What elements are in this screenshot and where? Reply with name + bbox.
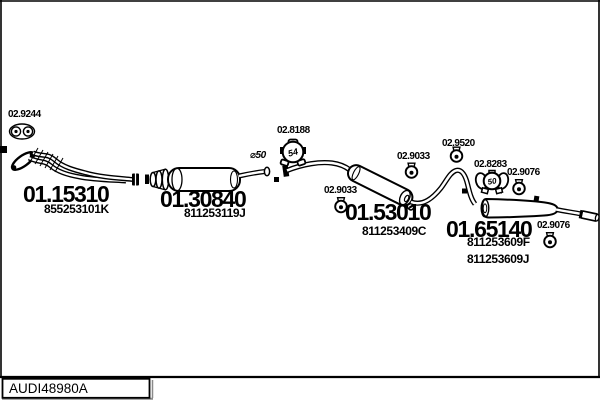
hanger-icon-9076-upper <box>513 180 525 195</box>
catalog-code: AUDI48980A <box>9 382 88 396</box>
label-mid-clamp-code: 02.8188 <box>277 126 310 136</box>
label-hanger-rear-upper-code: 02.9076 <box>507 168 540 178</box>
label-mid-silencer-code: 01.53010 <box>345 201 431 224</box>
label-front-gasket-code: 02.9244 <box>8 110 41 120</box>
label-pipe-diameter: ⌀50 <box>250 151 266 161</box>
front-pipe-drawing <box>29 148 133 181</box>
label-hanger-rear-lower-code: 02.9076 <box>537 221 570 231</box>
label-rear-clamp-code: 02.8283 <box>474 160 507 170</box>
hanger-icon-9520 <box>451 147 463 162</box>
label-mid-silencer-oem: 811253409C <box>362 225 426 237</box>
mid-pipe-drawing <box>282 163 350 177</box>
resonator-outlet-pipe <box>239 167 270 176</box>
gasket-icon <box>10 124 35 139</box>
label-hanger-mid-left-code: 02.9033 <box>324 186 357 196</box>
marker-square <box>0 146 7 153</box>
hanger-icon-9033-right <box>406 163 418 178</box>
clamp-icon-50: 50 <box>474 171 510 194</box>
label-rear-silencer-oem-f: 811253609F <box>467 236 530 248</box>
label-front-pipe-oem: 855253101K <box>44 203 109 215</box>
marker-square <box>462 189 467 194</box>
exhaust-diagram-page: 54 50 <box>0 0 600 400</box>
pipe-connector <box>132 173 149 186</box>
label-center-silencer-oem: 811253119J <box>184 207 245 219</box>
hanger-icon-9076-lower <box>544 233 556 248</box>
clamp-icon-54: 54 <box>280 140 306 167</box>
marker-square <box>274 177 279 182</box>
label-rear-silencer-oem-j: 811253609J <box>467 253 529 265</box>
label-hanger-rear-top-code: 02.9520 <box>442 139 475 149</box>
rear-silencer-drawing <box>481 196 557 218</box>
label-hanger-mid-right-code: 02.9033 <box>397 152 430 162</box>
